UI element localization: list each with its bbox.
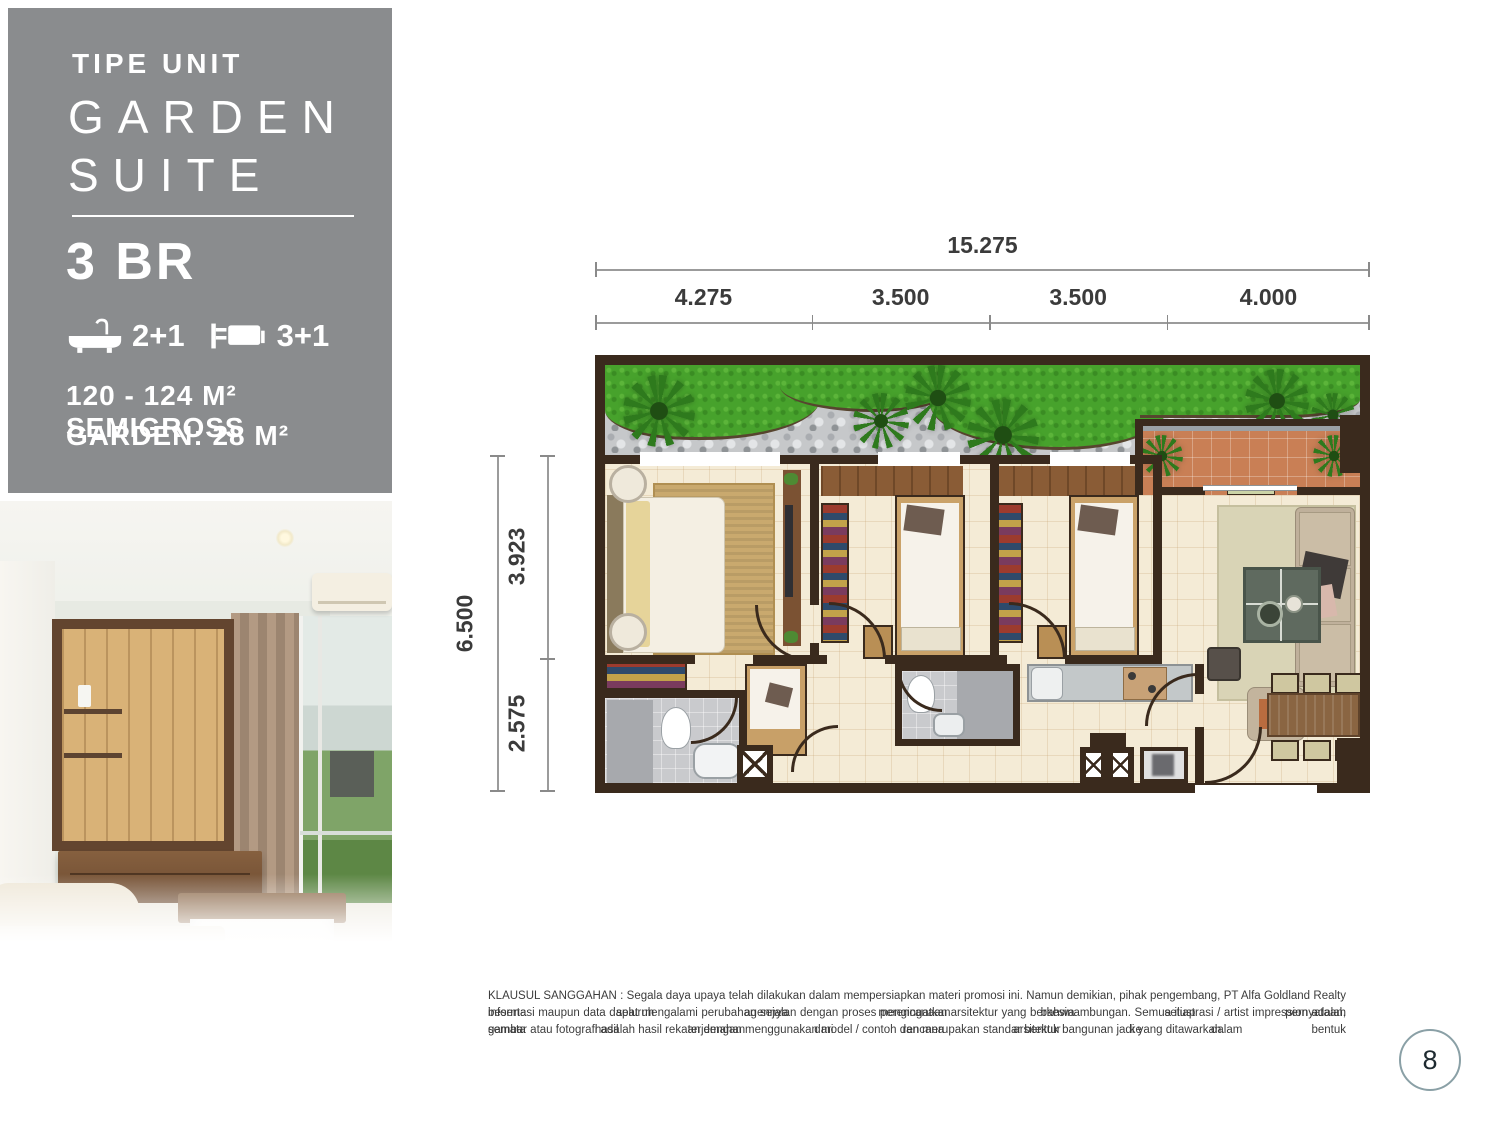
bedroom2-cabinet xyxy=(821,466,963,496)
master-nightstand xyxy=(609,465,647,503)
sink-icon xyxy=(933,713,965,737)
shaft-box xyxy=(1107,747,1134,783)
unit-info-panel: TIPE UNIT GARDEN SUITE 3 BR 2+1 xyxy=(8,8,392,493)
photo-shelf-top xyxy=(64,709,122,714)
washer-drum xyxy=(1152,754,1174,776)
bathroom-master-shower xyxy=(607,700,653,783)
floor-plan xyxy=(595,355,1370,793)
photo-shelf-bottom xyxy=(64,753,122,758)
sliding-door xyxy=(1203,485,1297,491)
page-number-badge: 8 xyxy=(1399,1029,1461,1091)
bath-count: 2+1 xyxy=(132,318,185,354)
disclaimer-line: gambar atau fotografi adalah hasil rekaa… xyxy=(488,1022,1346,1039)
bathtub-plan-icon xyxy=(693,743,741,779)
outer-wall xyxy=(595,355,605,793)
photo-tv-panel xyxy=(52,619,234,851)
dim-segment: 4.275 xyxy=(595,284,812,311)
window xyxy=(878,452,960,466)
photo-sofa-seat xyxy=(0,926,225,959)
dim-segment-labels: 4.275 3.500 3.500 4.000 xyxy=(595,284,1370,311)
wall-pier xyxy=(1340,415,1370,473)
photo-ceiling-lamp xyxy=(276,529,294,547)
wall-pier xyxy=(1337,738,1370,783)
shaft-box xyxy=(1080,747,1107,783)
bedroom3-cabinet xyxy=(995,466,1137,496)
dim-line-total xyxy=(595,269,1370,271)
shaft-box xyxy=(737,745,773,783)
window xyxy=(1050,452,1130,466)
photo-shelf-device xyxy=(78,685,91,707)
unit-facts-row: 2+1 3+1 xyxy=(68,313,329,359)
photo-planter-box xyxy=(330,751,374,797)
window xyxy=(640,452,780,466)
photo-left-wall xyxy=(0,561,55,921)
dim-line-segments xyxy=(595,322,1370,324)
dim-segment: 4.000 xyxy=(1167,284,1370,311)
wall xyxy=(605,655,695,664)
dining-chair xyxy=(1271,673,1299,694)
palm-tree-icon xyxy=(853,393,909,449)
photo-coffee-table-top xyxy=(178,893,346,923)
dim-height-segment: 2.575 xyxy=(504,684,531,764)
palm-tree-icon xyxy=(905,365,971,431)
dining-chair xyxy=(1271,740,1299,761)
plan-terrace xyxy=(1135,419,1360,495)
photo-ac-unit xyxy=(312,573,392,611)
dining-chair xyxy=(1303,673,1331,694)
bathroom-shared-shower xyxy=(957,671,1013,739)
wall xyxy=(1065,655,1162,664)
wall xyxy=(1297,487,1360,495)
dim-line-height-total xyxy=(497,455,499,792)
table-plate xyxy=(1285,595,1303,613)
bed-count: 3+1 xyxy=(277,318,330,354)
bed-icon xyxy=(209,320,267,352)
toilet-icon xyxy=(661,707,691,749)
wall xyxy=(990,464,999,664)
living-side-table xyxy=(1207,647,1241,681)
dim-total-height: 6.500 xyxy=(452,584,479,664)
entry-opening xyxy=(1195,785,1317,793)
dim-total-width: 15.275 xyxy=(595,232,1370,259)
photo-tv-console xyxy=(58,851,262,903)
kitchen-fridge xyxy=(1031,667,1063,700)
bedroom3-pillow xyxy=(1077,504,1118,535)
photo-console-drawer-line xyxy=(70,873,250,875)
page-number: 8 xyxy=(1422,1045,1437,1076)
wall xyxy=(1195,727,1204,783)
photo-railing xyxy=(300,831,392,835)
dining-chair xyxy=(1335,673,1363,694)
plan-dimensions-left: 6.500 3.923 2.575 xyxy=(445,455,570,792)
plant-icon xyxy=(784,473,798,485)
living-coffee-table xyxy=(1243,567,1321,643)
bedroom2-pillow xyxy=(903,504,944,535)
table-bowl xyxy=(1257,601,1283,627)
plan-dimensions-top: 15.275 4.275 3.500 3.500 4.000 xyxy=(595,232,1370,342)
photo-floor xyxy=(0,903,392,959)
photo-door-frame xyxy=(318,616,322,936)
dim-segment: 3.500 xyxy=(989,284,1167,311)
panel-title-line1: GARDEN xyxy=(68,90,349,144)
photo-sofa-back xyxy=(0,883,140,959)
unit-type-label: 3 BR xyxy=(66,232,196,292)
dim-line-height-segments xyxy=(547,455,549,792)
master-nightstand xyxy=(609,613,647,651)
panel-title-line2: SUITE xyxy=(68,148,273,202)
wall xyxy=(1135,419,1143,495)
bedroom2-bed-foot xyxy=(901,627,961,651)
photo-coffee-table-base xyxy=(190,919,334,959)
dining-table xyxy=(1267,693,1360,737)
bathtub-icon xyxy=(68,317,122,355)
wall xyxy=(810,464,819,605)
wall xyxy=(1153,487,1205,495)
unit-photo xyxy=(0,501,392,959)
wall xyxy=(885,655,1007,664)
master-tv xyxy=(785,505,793,597)
dim-height-segment: 3.923 xyxy=(504,517,531,597)
outer-wall xyxy=(595,355,1370,365)
panel-divider xyxy=(72,215,354,217)
palm-tree-icon xyxy=(623,375,695,447)
bedroom3-bed-foot xyxy=(1075,627,1135,651)
brochure-page: TIPE UNIT GARDEN SUITE 3 BR 2+1 xyxy=(0,0,1500,1125)
panel-eyebrow: TIPE UNIT xyxy=(72,48,243,80)
dim-segment: 3.500 xyxy=(812,284,990,311)
photo-ac-vent xyxy=(318,601,386,604)
garden-area-label: GARDEN: 28 M² xyxy=(66,420,289,452)
dining-chair xyxy=(1303,740,1331,761)
